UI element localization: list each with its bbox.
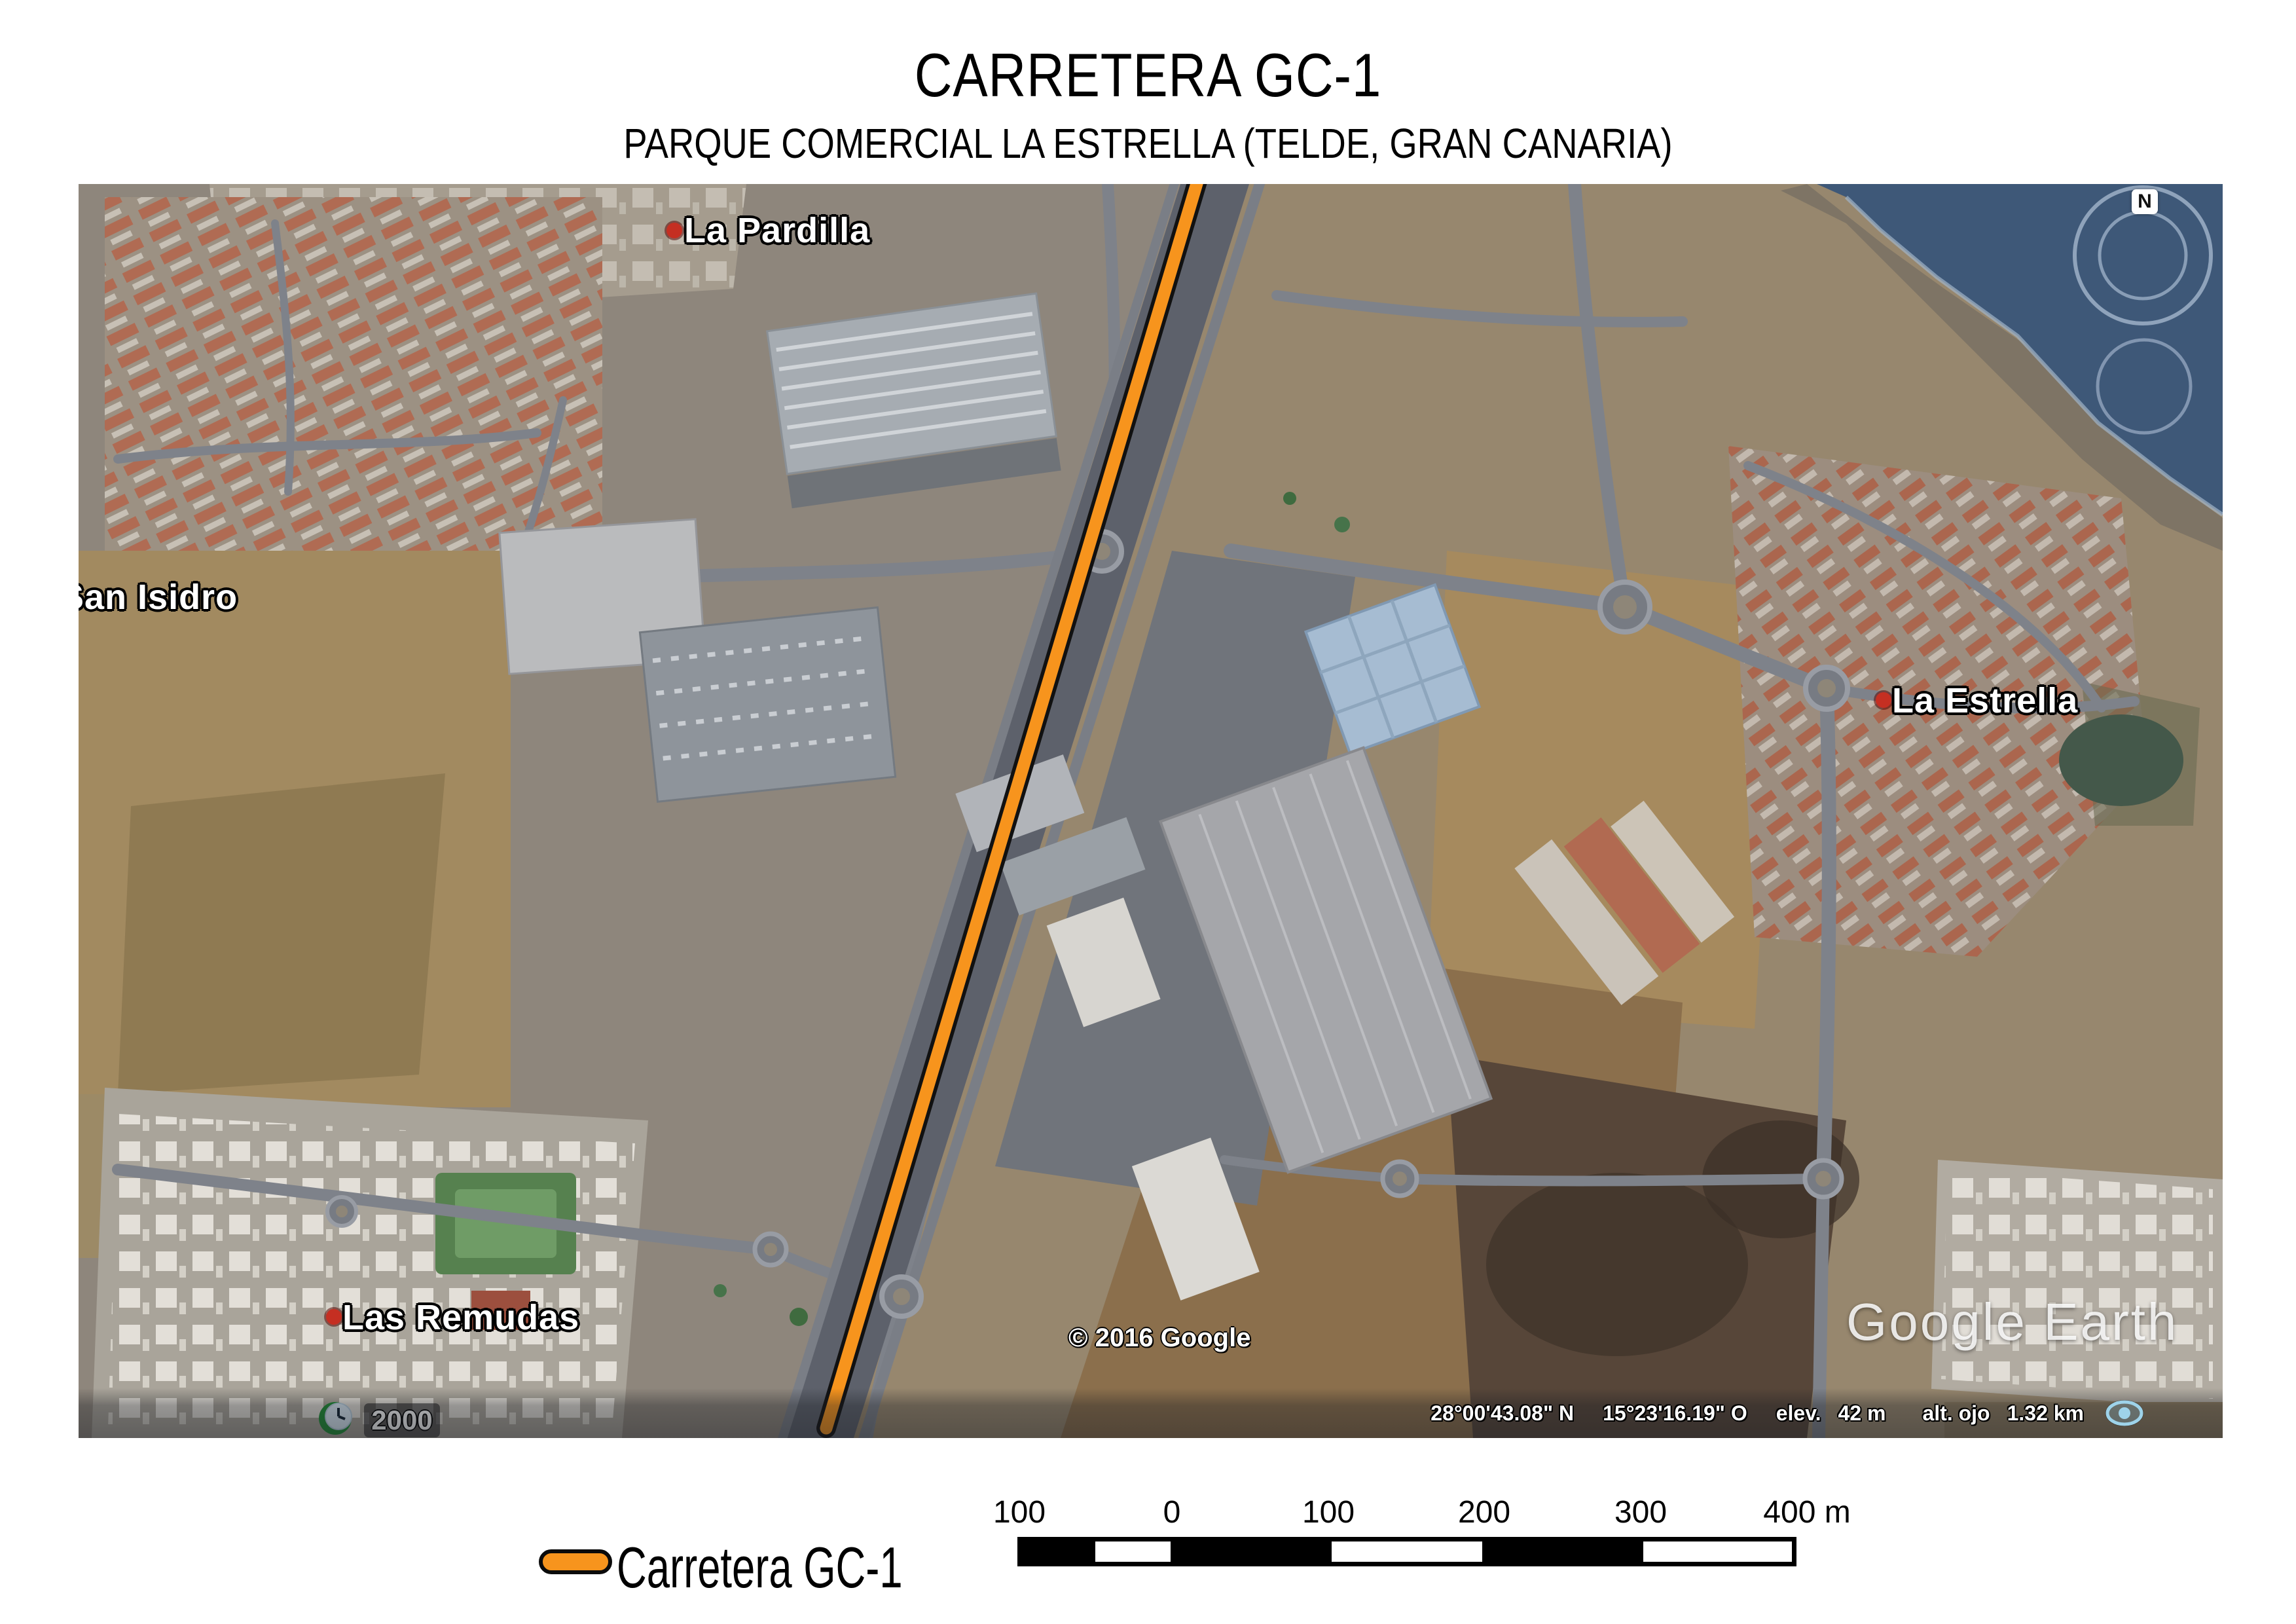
place-marker-dot [326, 1309, 342, 1325]
status-bar: 28°00'43.08" N 15°23'16.19" O elev. 42 m… [79, 1388, 2223, 1438]
page-subtitle: PARQUE COMERCIAL LA ESTRELLA (TELDE, GRA… [172, 122, 2124, 166]
longitude-value: 15°23'16.19" O [1603, 1401, 1747, 1426]
scale-bar-segment [1643, 1541, 1792, 1562]
scale-tick: 100 [993, 1494, 1046, 1530]
place-label-la-pardilla: La Pardilla [684, 210, 870, 251]
legend-swatch-gc1 [539, 1549, 612, 1574]
google-earth-watermark: Google Earth [1846, 1292, 2178, 1352]
scale-tick: 300 [1614, 1494, 1667, 1530]
page-title: CARRETERA GC-1 [172, 43, 2124, 108]
eye-icon [2104, 1397, 2145, 1429]
scale-tick: 200 [1458, 1494, 1510, 1530]
scale-bar-segment [1095, 1541, 1171, 1562]
legend-label-gc1: Carretera GC-1 [617, 1539, 903, 1596]
eye-altitude-value: 1.32 km [2007, 1401, 2084, 1426]
place-marker-dot [666, 223, 682, 238]
scale-bar [1017, 1537, 1796, 1566]
elevation-label: elev. [1776, 1401, 1821, 1426]
copyright-text: © 2016 Google [1068, 1323, 1250, 1353]
north-label: N [2138, 191, 2152, 213]
poster-page: CARRETERA GC-1 PARQUE COMERCIAL LA ESTRE… [0, 0, 2296, 1624]
satellite-map-viewport[interactable]: La Pardilla San Isidro La Estrella Las R… [79, 184, 2223, 1438]
satellite-imagery [79, 184, 2223, 1438]
place-label-las-remudas: Las Remudas [342, 1297, 579, 1338]
place-label-san-isidro: San Isidro [79, 577, 238, 618]
place-marker-dot [1876, 692, 1891, 708]
scale-tick: 100 [1302, 1494, 1355, 1530]
elevation-value: 42 m [1838, 1401, 1886, 1426]
latitude-value: 28°00'43.08" N [1430, 1401, 1574, 1426]
place-label-la-estrella: La Estrella [1892, 680, 2078, 721]
eye-altitude-label: alt. ojo [1922, 1401, 1990, 1426]
scale-bar-segment [1332, 1541, 1482, 1562]
scale-tick: 0 [1163, 1494, 1181, 1530]
scale-tick: 400 m [1763, 1494, 1850, 1530]
north-button[interactable]: N [2132, 189, 2158, 214]
